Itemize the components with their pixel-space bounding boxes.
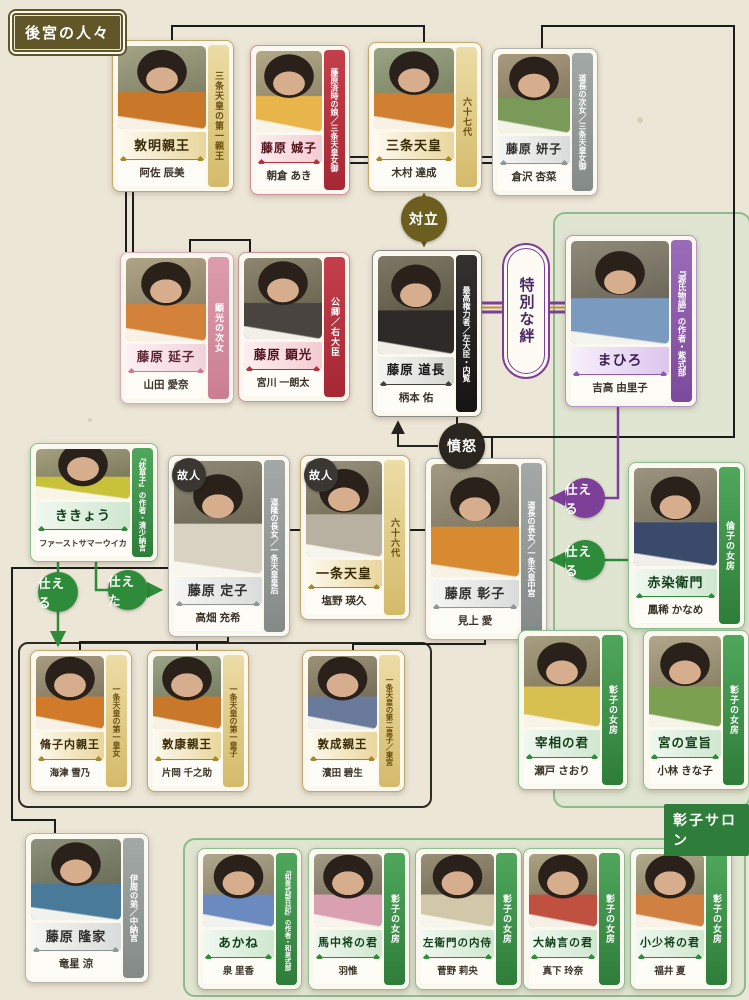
- actor-name: 真下 玲奈: [529, 959, 597, 984]
- role-ribbon: 彰子の女房: [496, 853, 517, 985]
- card-dainagon[interactable]: 彰子の女房 大納言の君 真下 玲奈: [523, 848, 625, 990]
- portrait-shoshi: [431, 464, 519, 577]
- role-ribbon: 一条天皇の第一皇女: [106, 655, 127, 787]
- portrait-sanjo: [374, 48, 454, 129]
- role-ribbon: 道長の次女／三条天皇女御: [572, 53, 593, 191]
- role-ribbon: 顕光の次女: [208, 257, 229, 399]
- role-ribbon: 伊周の弟／中納言: [123, 838, 144, 978]
- card-koshosho[interactable]: 彰子の女房 小少将の君 福井 夏: [630, 848, 732, 990]
- character-name: 大納言の君: [529, 930, 597, 957]
- actor-name: 山田 愛奈: [126, 373, 206, 398]
- actor-name: 泉 里香: [203, 959, 274, 984]
- actor-name: 小林 きな子: [649, 759, 721, 784]
- role-text: 藤原済時の娘／三条天皇女御: [324, 68, 345, 172]
- role-ribbon: 彰子の女房: [384, 853, 405, 985]
- role-text: 『和泉式部日記』の作者・和泉式部: [276, 867, 297, 971]
- character-name: 左衛門の内侍: [421, 930, 494, 957]
- role-ribbon: 『和泉式部日記』の作者・和泉式部: [276, 853, 297, 985]
- deceased-badge-teishi: 故人: [172, 458, 206, 492]
- portrait-saemon: [421, 854, 494, 927]
- role-ribbon: 六十七代: [456, 47, 477, 187]
- card-atsuakira[interactable]: 三条天皇の第一親王 敦明親王 阿佐 辰美: [112, 40, 234, 192]
- role-ribbon: 彰子の女房: [723, 635, 744, 785]
- character-name: 藤原 顕光: [244, 342, 322, 369]
- character-name: 宮の宣旨: [649, 730, 721, 757]
- role-ribbon: 『源氏物語』の作者・紫式部: [671, 240, 692, 402]
- character-name: ききょう: [36, 502, 130, 529]
- role-text: 『枕草子』の作者・清少納言: [132, 454, 153, 552]
- role-text: 彰子の女房: [706, 894, 727, 944]
- role-ribbon: 六十六代: [384, 460, 405, 615]
- card-miya[interactable]: 彰子の女房 宮の宣旨 小林 きな子: [643, 630, 749, 790]
- card-akane[interactable]: 『和泉式部日記』の作者・和泉式部 あかね 泉 里香: [197, 848, 302, 990]
- card-akimitsu[interactable]: 公卿／右大臣 藤原 顕光 宮川 一朗太: [238, 252, 350, 402]
- role-text: 彰子の女房: [496, 894, 517, 944]
- character-name: 藤原 彰子: [431, 580, 519, 607]
- character-name: 藤原 定子: [174, 577, 262, 604]
- actor-name: 朝倉 あき: [256, 164, 322, 189]
- actor-name: 濱田 碧生: [308, 761, 377, 786]
- actor-name: 竜星 涼: [31, 952, 121, 977]
- card-shoshi[interactable]: 道長の長女／一条天皇中宮 藤原 彰子 見上 愛: [425, 458, 547, 640]
- card-michinaga[interactable]: 最高権力者／左大臣・内覧 藤原 道長 柄本 佑: [372, 250, 482, 417]
- portrait-atsuakira: [118, 46, 206, 129]
- character-name: 敦成親王: [308, 732, 377, 759]
- role-text: 顕光の次女: [208, 303, 229, 353]
- card-saemon[interactable]: 彰子の女房 左衛門の内侍 菅野 莉央: [415, 848, 522, 990]
- shoshi-salon-label: 彰子サロン: [664, 804, 749, 856]
- role-ribbon: 『枕草子』の作者・清少納言: [132, 448, 153, 557]
- role-text: 道長の長女／一条天皇中宮: [521, 501, 542, 597]
- chart-title: 後宮の人々: [25, 25, 110, 42]
- role-text: 倫子の女房: [719, 521, 740, 571]
- portrait-atsuyasu: [153, 656, 221, 729]
- role-text: 一条天皇の第二皇子／東宮: [379, 676, 400, 766]
- portrait-mahiro: [571, 241, 669, 344]
- portrait-shushi: [36, 656, 104, 729]
- card-seishi[interactable]: 藤原済時の娘／三条天皇女御 藤原 娍子 朝倉 あき: [250, 45, 350, 195]
- actor-name: 鳳稀 かなめ: [634, 598, 717, 623]
- role-ribbon: 公卿／右大臣: [324, 257, 345, 397]
- portrait-takaie: [31, 839, 121, 920]
- actor-name: 福井 夏: [636, 959, 704, 984]
- actor-name: 片岡 千之助: [153, 761, 221, 786]
- card-uma[interactable]: 彰子の女房 馬中将の君 羽惟: [308, 848, 410, 990]
- role-text: 三条天皇の第一親王: [208, 71, 229, 161]
- special-bond-text: 特別な絆: [516, 277, 537, 345]
- conflict-badge: 対立: [401, 196, 447, 242]
- portrait-miya: [649, 636, 721, 727]
- card-atsuyasu[interactable]: 一条天皇の第一皇子 敦康親王 片岡 千之助: [147, 650, 249, 792]
- character-name: 馬中将の君: [314, 930, 382, 957]
- actor-name: 見上 愛: [431, 609, 519, 634]
- role-text: 『源氏物語』の作者・紫式部: [671, 266, 692, 377]
- portrait-akazome: [634, 468, 717, 566]
- role-ribbon: 彰子の女房: [602, 635, 623, 785]
- role-ribbon: 倫子の女房: [719, 467, 740, 624]
- relationship-chart: 後宮の人々 三条天皇の第一親王 敦明親王 阿佐 辰美 藤原済時の娘／三条天皇女御…: [0, 0, 749, 1000]
- character-name: 敦康親王: [153, 732, 221, 759]
- card-sanjo[interactable]: 六十七代 三条天皇 木村 達成: [368, 42, 482, 192]
- character-name: 宰相の君: [524, 730, 600, 757]
- serves-badge-akazome: 仕える: [565, 540, 605, 580]
- card-kenshi[interactable]: 道長の次女／三条天皇女御 藤原 妍子 倉沢 杏菜: [492, 48, 598, 196]
- role-text: 最高権力者／左大臣・内覧: [456, 286, 477, 382]
- portrait-saisho: [524, 636, 600, 727]
- card-mahiro[interactable]: 『源氏物語』の作者・紫式部 まひろ 吉高 由里子: [565, 235, 697, 407]
- actor-name: 海津 雪乃: [36, 761, 104, 786]
- special-bond-badge: 特別な絆: [502, 243, 550, 379]
- actor-name: 菅野 莉央: [421, 959, 494, 984]
- serves-badge-mahiro: 仕える: [565, 478, 605, 518]
- character-name: 小少将の君: [636, 930, 704, 957]
- actor-name: 羽惟: [314, 959, 382, 984]
- card-shushi[interactable]: 一条天皇の第一皇女 脩子内親王 海津 雪乃: [30, 650, 132, 792]
- role-ribbon: 藤原済時の娘／三条天皇女御: [324, 50, 345, 190]
- portrait-akimitsu: [244, 258, 322, 339]
- actor-name: 倉沢 杏菜: [498, 165, 570, 190]
- portrait-dainagon: [529, 854, 597, 927]
- fury-badge: 憤怒: [439, 423, 485, 469]
- portrait-michinaga: [378, 256, 454, 354]
- serves-badge-kikyou: 仕える: [38, 572, 78, 612]
- role-text: 六十七代: [456, 97, 477, 137]
- portrait-kenshi: [498, 54, 570, 133]
- portrait-kikyou: [36, 449, 130, 499]
- character-name: まひろ: [571, 347, 669, 374]
- role-text: 伊周の弟／中納言: [123, 874, 144, 942]
- actor-name: 阿佐 辰美: [118, 161, 206, 186]
- card-enshi[interactable]: 顕光の次女 藤原 延子 山田 愛奈: [120, 252, 234, 404]
- character-name: あかね: [203, 930, 274, 957]
- role-text: 彰子の女房: [599, 894, 620, 944]
- card-atsuhira[interactable]: 一条天皇の第二皇子／東宮 敦成親王 濱田 碧生: [302, 650, 405, 792]
- actor-name: 柄本 佑: [378, 386, 454, 411]
- role-text: 彰子の女房: [602, 685, 623, 735]
- actor-name: ファーストサマーウイカ: [36, 531, 130, 556]
- role-ribbon: 一条天皇の第一皇子: [223, 655, 244, 787]
- role-text: 道隆の長女／一条天皇皇后: [264, 498, 285, 594]
- card-kikyou[interactable]: 『枕草子』の作者・清少納言 ききょう ファーストサマーウイカ: [30, 443, 158, 562]
- character-name: 藤原 道長: [378, 357, 454, 384]
- role-text: 一条天皇の第一皇子: [223, 685, 244, 757]
- portrait-enshi: [126, 258, 206, 341]
- character-name: 三条天皇: [374, 132, 454, 159]
- actor-name: 高畑 充希: [174, 606, 262, 631]
- character-name: 脩子内親王: [36, 732, 104, 759]
- role-text: 六十六代: [384, 518, 405, 558]
- chart-title-plaque: 後宮の人々: [12, 13, 123, 52]
- served-badge-kikyou: 仕えた: [108, 570, 148, 610]
- character-name: 藤原 妍子: [498, 136, 570, 163]
- character-name: 一条天皇: [306, 560, 382, 587]
- portrait-koshosho: [636, 854, 704, 927]
- role-ribbon: 一条天皇の第二皇子／東宮: [379, 655, 400, 787]
- card-saisho[interactable]: 彰子の女房 宰相の君 瀬戸 さおり: [518, 630, 628, 790]
- role-ribbon: 道長の長女／一条天皇中宮: [521, 463, 542, 635]
- actor-name: 瀬戸 さおり: [524, 759, 600, 784]
- character-name: 藤原 娍子: [256, 135, 322, 162]
- role-ribbon: 彰子の女房: [706, 853, 727, 985]
- role-ribbon: 最高権力者／左大臣・内覧: [456, 255, 477, 412]
- card-akazome[interactable]: 倫子の女房 赤染衛門 鳳稀 かなめ: [628, 462, 745, 629]
- actor-name: 木村 達成: [374, 161, 454, 186]
- role-ribbon: 道隆の長女／一条天皇皇后: [264, 460, 285, 632]
- role-text: 道長の次女／三条天皇女御: [572, 74, 593, 170]
- portrait-uma: [314, 854, 382, 927]
- character-name: 敦明親王: [118, 132, 206, 159]
- character-name: 藤原 隆家: [31, 923, 121, 950]
- actor-name: 吉高 由里子: [571, 376, 669, 401]
- role-text: 彰子の女房: [723, 685, 744, 735]
- role-text: 彰子の女房: [384, 894, 405, 944]
- role-ribbon: 三条天皇の第一親王: [208, 45, 229, 187]
- portrait-akane: [203, 854, 274, 927]
- portrait-atsuhira: [308, 656, 377, 729]
- character-name: 赤染衛門: [634, 569, 717, 596]
- actor-name: 宮川 一朗太: [244, 371, 322, 396]
- character-name: 藤原 延子: [126, 344, 206, 371]
- card-takaie[interactable]: 伊周の弟／中納言 藤原 隆家 竜星 涼: [25, 833, 149, 983]
- role-text: 公卿／右大臣: [324, 297, 345, 357]
- deceased-badge-ichijo: 故人: [304, 458, 338, 492]
- portrait-seishi: [256, 51, 322, 132]
- role-text: 一条天皇の第一皇女: [106, 685, 127, 757]
- actor-name: 塩野 瑛久: [306, 589, 382, 614]
- role-ribbon: 彰子の女房: [599, 853, 620, 985]
